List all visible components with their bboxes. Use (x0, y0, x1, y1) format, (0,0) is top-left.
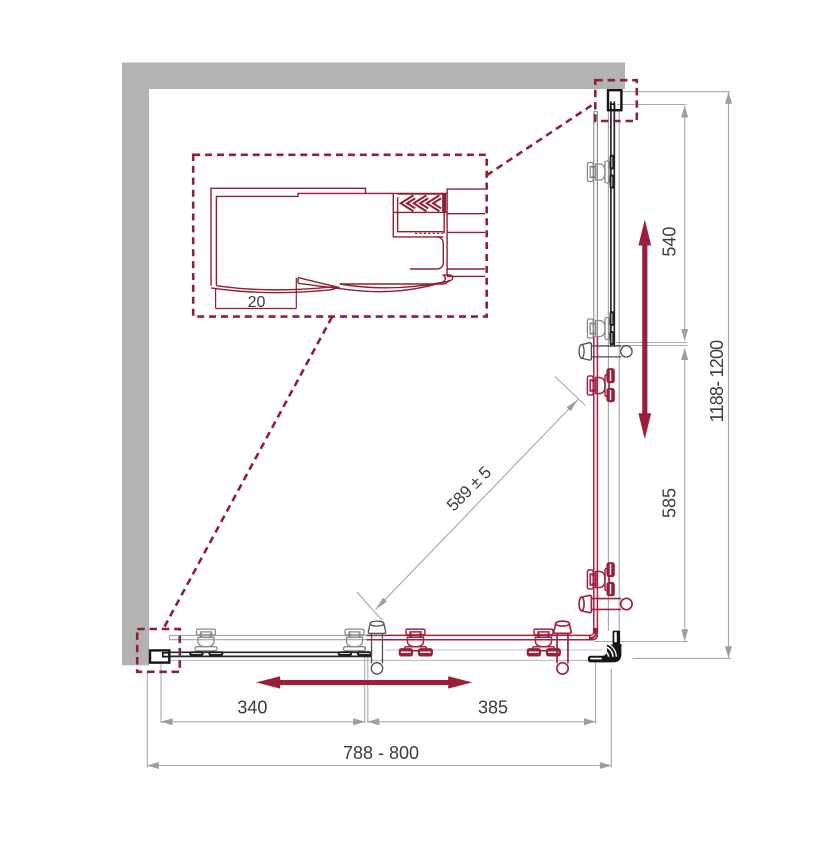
svg-text:385: 385 (478, 697, 508, 717)
svg-text:340: 340 (237, 697, 267, 717)
svg-text:540: 540 (660, 227, 680, 257)
svg-text:20: 20 (248, 294, 266, 311)
svg-text:585: 585 (659, 488, 679, 518)
svg-text:788 - 800: 788 - 800 (343, 743, 419, 763)
svg-text:1188- 1200: 1188- 1200 (707, 340, 727, 423)
svg-text:589 ± 5: 589 ± 5 (443, 463, 495, 515)
